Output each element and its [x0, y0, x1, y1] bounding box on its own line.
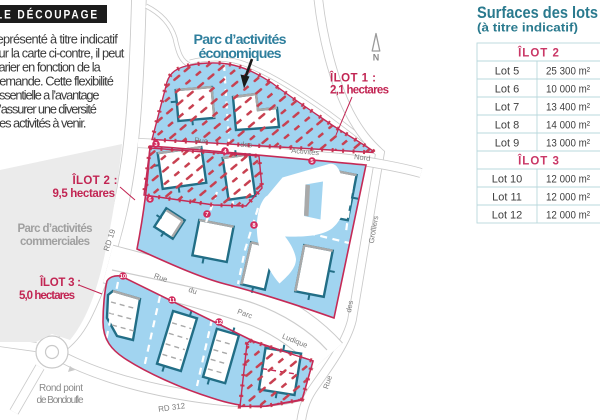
svg-text:LE DÉCOUPAGE: LE DÉCOUPAGE: [0, 8, 99, 22]
svg-text:commerciales: commerciales: [20, 236, 90, 248]
svg-text:9,5 hectares: 9,5 hectares: [53, 188, 116, 200]
svg-text:Lot 7: Lot 7: [495, 102, 519, 114]
svg-text:des: des: [240, 140, 253, 150]
svg-text:ÎLOT 3 :: ÎLOT 3 :: [39, 276, 81, 289]
svg-text:13 000 m²: 13 000 m²: [546, 138, 590, 150]
svg-text:10 000 m²: 10 000 m²: [546, 84, 590, 96]
svg-text:11: 11: [169, 298, 176, 304]
svg-text:(à titre indicatif): (à titre indicatif): [477, 21, 578, 35]
svg-text:Lot 12: Lot 12: [492, 210, 523, 222]
svg-text:ÎLOT 3: ÎLOT 3: [517, 155, 560, 168]
svg-text:des activités à venir.: des activités à venir.: [0, 115, 86, 130]
svg-text:7: 7: [205, 212, 208, 218]
svg-text:Rue: Rue: [194, 136, 208, 146]
svg-text:ÎLOT 2 :: ÎLOT 2 :: [72, 174, 118, 187]
svg-text:Lot 8: Lot 8: [495, 120, 519, 132]
svg-text:de Bondoufle: de Bondoufle: [37, 395, 84, 406]
svg-text:2,1 hectares: 2,1 hectares: [330, 85, 389, 97]
svg-text:demande. Cette flexibilité: demande. Cette flexibilité: [0, 73, 114, 88]
svg-text:Lot 9: Lot 9: [495, 138, 519, 150]
svg-text:ÎLOT 1 :: ÎLOT 1 :: [329, 72, 376, 85]
svg-text:25 300 m²: 25 300 m²: [546, 66, 590, 78]
svg-text:Lot 10: Lot 10: [492, 174, 523, 186]
svg-text:10: 10: [120, 274, 126, 280]
svg-text:économiques: économiques: [199, 46, 282, 62]
svg-text:Parc d’activités: Parc d’activités: [18, 223, 93, 235]
svg-text:RD 312: RD 312: [158, 401, 187, 414]
svg-text:N: N: [373, 53, 380, 63]
svg-text:sur la carte ci-contre, il peu: sur la carte ci-contre, il peut: [0, 45, 125, 60]
svg-text:varier en fonction de la: varier en fonction de la: [0, 59, 102, 74]
svg-text:13 400 m²: 13 400 m²: [546, 102, 590, 114]
svg-text:Lot 5: Lot 5: [495, 66, 519, 78]
svg-text:12: 12: [216, 320, 222, 326]
svg-text:Surfaces des lots: Surfaces des lots: [477, 3, 598, 22]
svg-text:12 000 m²: 12 000 m²: [546, 210, 590, 222]
svg-text:Lot 6: Lot 6: [495, 84, 519, 96]
svg-text:Lot 11: Lot 11: [492, 192, 522, 204]
svg-text:Rond point: Rond point: [39, 383, 83, 394]
svg-text:14 000 m²: 14 000 m²: [546, 120, 590, 132]
svg-text:représenté à titre indicatif: représenté à titre indicatif: [0, 31, 118, 46]
svg-text:ÎLOT 2: ÎLOT 2: [517, 47, 560, 60]
svg-text:5,0 hectares: 5,0 hectares: [19, 290, 75, 302]
svg-text:d’assurer une diversité: d’assurer une diversité: [0, 101, 97, 116]
svg-text:12 000 m²: 12 000 m²: [546, 192, 590, 204]
svg-text:essentielle a l’avantage: essentielle a l’avantage: [0, 87, 100, 102]
svg-text:12 000 m²: 12 000 m²: [546, 174, 590, 186]
